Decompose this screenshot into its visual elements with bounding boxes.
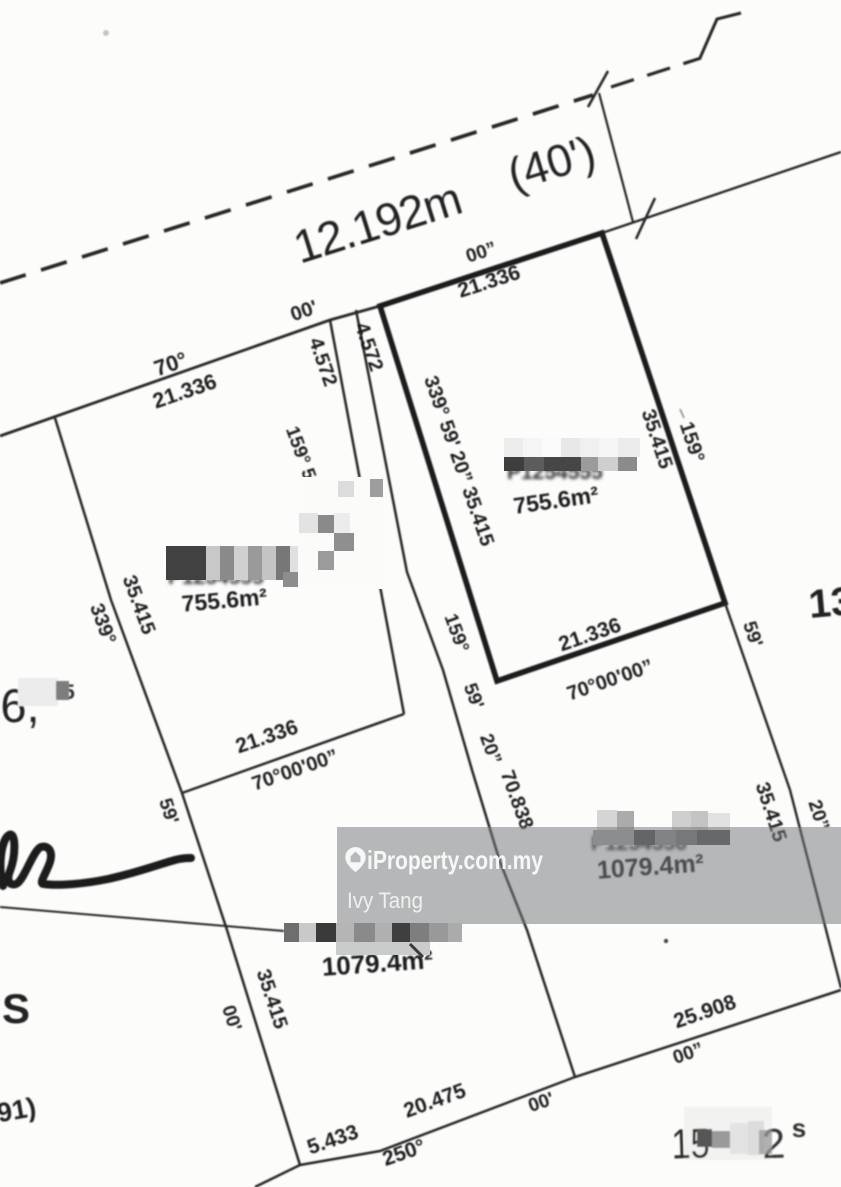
svg-text:iProperty.com.my: iProperty.com.my (367, 845, 543, 875)
svg-text:S: S (2, 985, 30, 1032)
svg-text:s: s (792, 1113, 806, 1143)
svg-text:Ivy Tang: Ivy Tang (347, 888, 423, 913)
svg-text:13: 13 (807, 579, 841, 627)
